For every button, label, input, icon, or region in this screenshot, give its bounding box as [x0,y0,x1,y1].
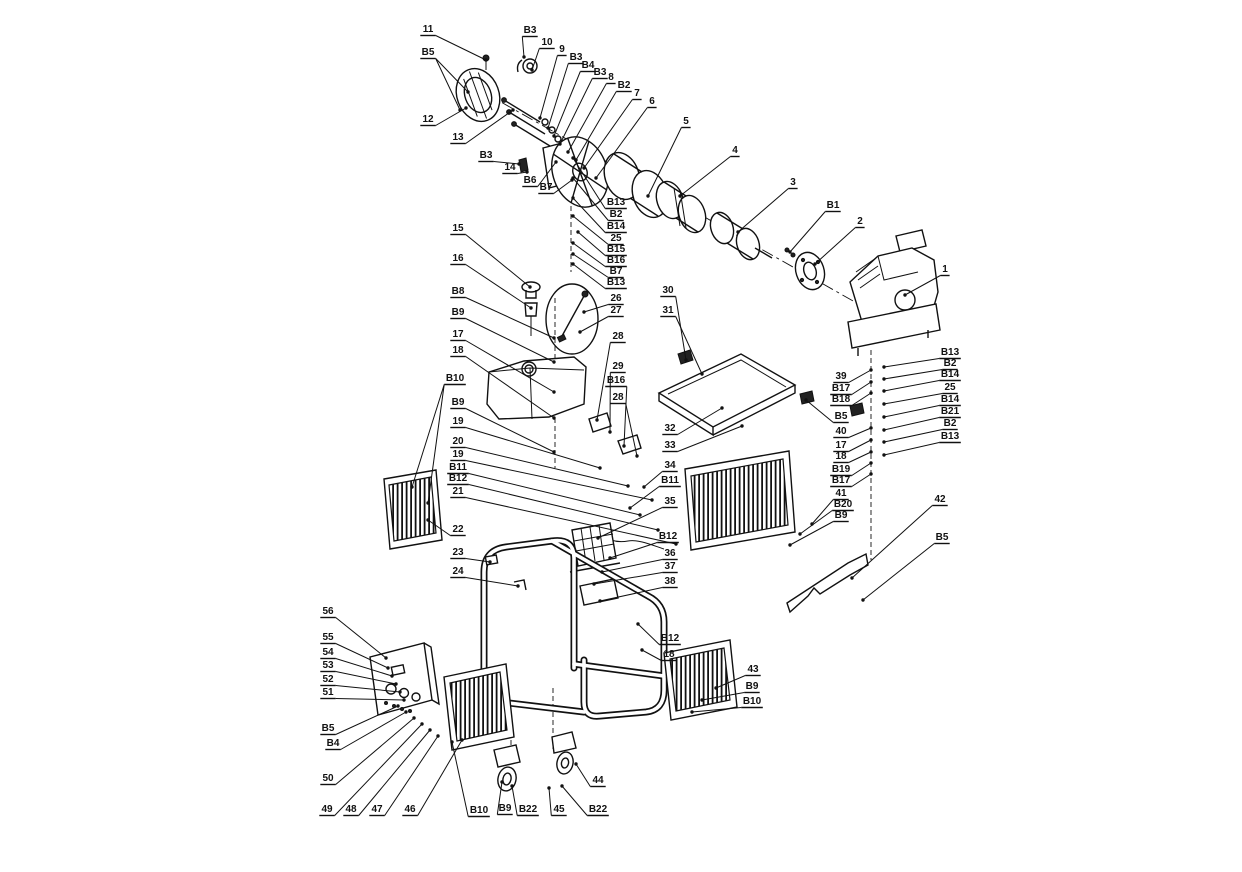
svg-text:B12: B12 [449,473,468,484]
callout-B3: B3 [546,52,583,130]
svg-text:21: 21 [452,486,464,497]
svg-text:25: 25 [944,382,956,393]
svg-text:B8: B8 [452,286,465,297]
svg-text:16: 16 [452,253,464,264]
svg-text:32: 32 [664,423,676,434]
frame-tubes [484,541,664,717]
svg-text:22: 22 [452,524,464,535]
svg-text:2: 2 [857,216,863,227]
callout-B12: B12 [447,473,660,532]
svg-text:17: 17 [452,329,464,340]
svg-text:23: 23 [452,547,464,558]
svg-text:30: 30 [662,285,674,296]
svg-text:B2: B2 [610,209,623,220]
svg-text:B3: B3 [480,150,493,161]
svg-text:B9: B9 [746,681,759,692]
svg-text:B1: B1 [827,200,840,211]
svg-text:B13: B13 [607,197,626,208]
rear-louver-panel [685,451,795,550]
svg-text:20: 20 [452,436,464,447]
callout-B9: B9 [788,510,848,547]
callout-B11: B11 [447,462,642,517]
svg-text:45: 45 [553,804,565,815]
callout-3: 3 [736,177,797,234]
svg-text:55: 55 [322,632,334,643]
svg-text:B5: B5 [936,532,949,543]
svg-text:40: 40 [835,426,847,437]
callout-39: 39 [833,368,872,382]
svg-text:17: 17 [835,440,847,451]
svg-text:18: 18 [835,451,847,462]
svg-text:41: 41 [835,488,847,499]
svg-text:1: 1 [942,264,948,275]
svg-text:12: 12 [422,114,434,125]
clamp [800,391,814,404]
left-louver-panel [384,470,442,549]
svg-text:B11: B11 [449,462,467,473]
svg-text:24: 24 [452,566,464,577]
svg-text:B3: B3 [524,25,537,36]
callout-17: 17 [833,438,872,451]
callout-B8: B8 [450,286,555,340]
canopy-cover [659,354,795,435]
adapter-flange [791,249,829,294]
through-bolts [502,98,550,146]
svg-text:B12: B12 [661,633,680,644]
svg-text:42: 42 [934,494,946,505]
callout-B19: B19 [830,461,873,475]
svg-text:8: 8 [608,72,614,83]
svg-text:B19: B19 [832,464,851,475]
callout-31: 31 [660,305,703,376]
svg-text:10: 10 [541,37,553,48]
callout-40: 40 [833,426,872,438]
svg-text:B22: B22 [589,804,608,815]
svg-text:19: 19 [452,416,464,427]
svg-text:B17: B17 [832,475,851,486]
svg-text:18: 18 [452,345,464,356]
svg-text:54: 54 [322,647,334,658]
callout-B5: B5 [861,532,949,602]
svg-text:B6: B6 [524,175,537,186]
svg-text:B5: B5 [835,411,848,422]
callout-30: 30 [660,285,687,362]
svg-text:B7: B7 [540,182,553,193]
svg-text:37: 37 [664,561,676,572]
svg-text:18: 18 [663,649,675,660]
callout-20: 20 [450,436,629,488]
callout-2: 2 [813,216,864,266]
svg-text:B2: B2 [618,80,631,91]
svg-text:B11: B11 [661,475,679,486]
svg-text:48: 48 [345,804,357,815]
svg-text:B7: B7 [610,266,623,277]
svg-text:46: 46 [404,804,416,815]
svg-text:B16: B16 [607,375,626,386]
callout-B22: B22 [560,784,609,815]
skid-strip [787,554,868,612]
callout-18: 18 [833,450,872,462]
svg-text:39: 39 [835,371,847,382]
svg-text:5: 5 [683,116,689,127]
svg-text:49: 49 [321,804,333,815]
rotor [707,209,772,262]
fuel-tank [487,357,586,419]
svg-text:29: 29 [612,361,624,372]
svg-text:27: 27 [610,305,622,316]
callout-50: 50 [320,716,415,784]
callout-B10: B10 [450,740,490,816]
svg-text:B14: B14 [607,221,626,232]
svg-text:53: 53 [322,660,334,671]
svg-text:36: 36 [664,548,676,559]
svg-text:56: 56 [322,606,334,617]
svg-text:B10: B10 [470,805,489,816]
caster-right [552,732,576,775]
svg-text:28: 28 [612,331,624,342]
starter-cup [518,59,538,73]
svg-text:43: 43 [747,664,759,675]
svg-text:B14: B14 [941,369,960,380]
callout-B1: B1 [788,200,840,254]
fan-grille [449,62,507,127]
svg-text:B17: B17 [832,383,851,394]
bolt-detail-oval [546,284,598,354]
svg-text:B13: B13 [941,431,960,442]
svg-text:B12: B12 [659,531,678,542]
svg-text:B13: B13 [607,277,626,288]
svg-text:B10: B10 [446,373,465,384]
callout-44: 44 [574,762,605,786]
callout-B18: B18 [830,391,873,405]
callout-B13: B13 [882,431,961,457]
svg-text:B5: B5 [422,47,435,58]
callout-18: 18 [640,648,676,660]
callout-B12: B12 [636,622,681,644]
side-louver-panel [664,640,737,720]
svg-text:B3: B3 [594,67,607,78]
callout-B22: B22 [510,784,539,815]
callout-45: 45 [547,786,566,815]
svg-text:B4: B4 [327,738,340,749]
svg-text:47: 47 [371,804,383,815]
svg-text:B9: B9 [499,803,512,814]
svg-text:50: 50 [322,773,334,784]
exploded-parts-diagram: 11B51213B3109B3B4B38B276543B121B314B6B7B… [0,0,1242,872]
callout-B4: B4 [552,60,595,138]
callout-8: 8 [566,72,615,154]
svg-text:B9: B9 [835,510,848,521]
callout-B17: B17 [830,472,873,486]
svg-text:28: 28 [612,392,624,403]
svg-text:14: 14 [504,162,516,173]
callout-4: 4 [678,145,739,198]
svg-text:35: 35 [664,496,676,507]
svg-text:19: 19 [452,449,464,460]
svg-text:33: 33 [664,440,676,451]
front-louver-panel [444,664,514,750]
callout-27: 27 [578,305,623,334]
svg-text:B15: B15 [607,244,626,255]
svg-text:B9: B9 [452,397,465,408]
svg-text:4: 4 [732,145,738,156]
stator-core [652,178,710,236]
svg-text:B21: B21 [941,406,960,417]
svg-text:25: 25 [610,233,622,244]
svg-text:38: 38 [664,576,676,587]
svg-text:34: 34 [664,460,676,471]
svg-text:15: 15 [452,223,464,234]
svg-text:9: 9 [559,44,565,55]
caster-left [494,745,520,793]
svg-text:B18: B18 [832,394,851,405]
svg-text:11: 11 [423,24,434,35]
svg-text:B14: B14 [941,394,960,405]
callout-16: 16 [450,253,532,310]
svg-text:31: 31 [662,305,674,316]
svg-text:B5: B5 [322,723,335,734]
callout-49: 49 [319,722,423,815]
diagram-svg: 11B51213B3109B3B4B38B276543B121B314B6B7B… [0,0,1242,872]
callout-B3: B3 [522,25,537,59]
svg-text:13: 13 [452,132,464,143]
svg-text:B13: B13 [941,347,960,358]
svg-text:44: 44 [592,775,604,786]
svg-text:B10: B10 [743,696,762,707]
frame-spacers [485,555,526,590]
svg-text:6: 6 [649,96,655,107]
svg-text:B22: B22 [519,804,538,815]
callout-48: 48 [343,728,431,815]
svg-text:51: 51 [322,687,334,698]
svg-text:26: 26 [610,293,622,304]
callout-B4: B4 [325,710,407,749]
svg-text:B9: B9 [452,307,465,318]
svg-text:3: 3 [790,177,796,188]
svg-text:B16: B16 [607,255,626,266]
callout-B17: B17 [830,380,873,394]
svg-text:B20: B20 [834,499,853,510]
svg-text:7: 7 [634,88,640,99]
svg-text:B2: B2 [944,418,957,429]
svg-text:B2: B2 [944,358,957,369]
svg-text:52: 52 [322,674,334,685]
engine [848,230,940,356]
callout-B16: B16 [605,375,627,448]
callout-B9: B9 [450,307,555,364]
grille-bolt [483,55,489,70]
callout-42: 42 [850,494,947,580]
